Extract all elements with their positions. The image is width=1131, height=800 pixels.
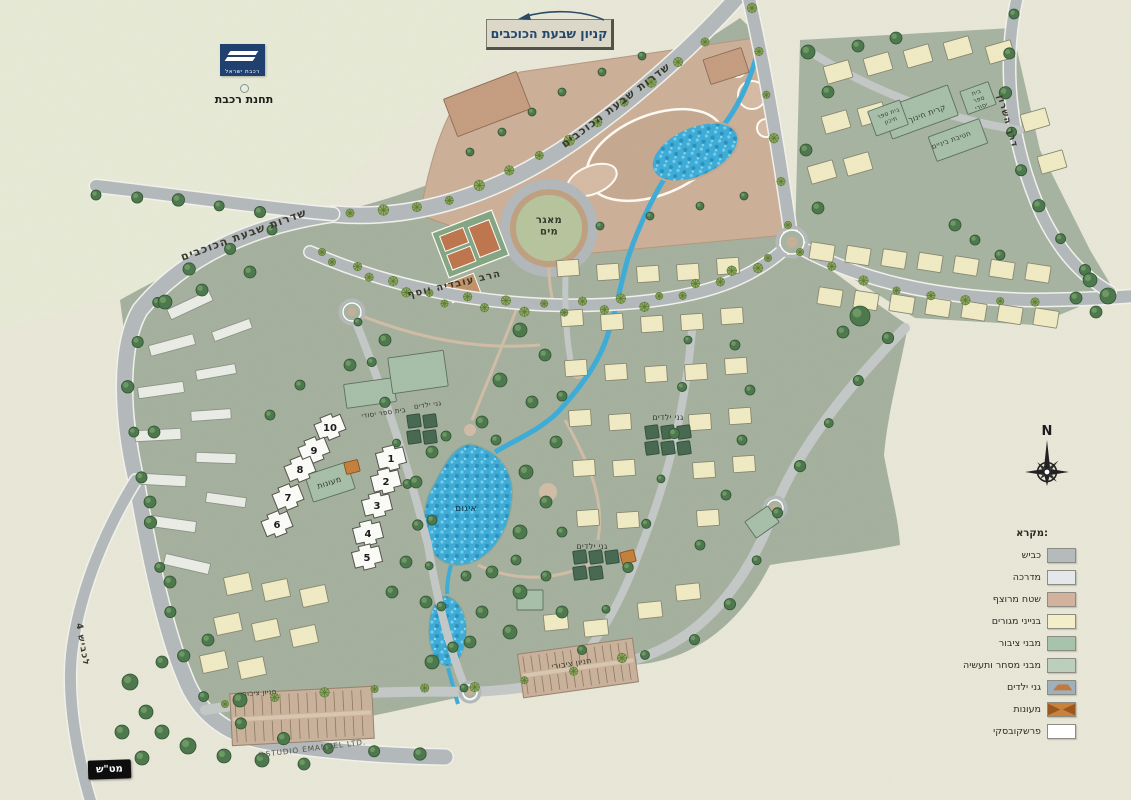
mall-title-text: קניון שבעת הכוכבים [491,26,608,41]
logo-stripe-icon [225,57,256,61]
svg-text:7: 7 [285,493,292,504]
legend-item-prashkovsky: פרשקובסקי [936,724,1078,739]
label-kindergartens-south: גני ילדים [576,542,608,551]
legend-swatch-commerce-industry-buildings [1047,658,1076,673]
legend-swatch-residential-buildings [1047,614,1076,629]
legend-item-kindergartens: גני ילדים [936,680,1078,695]
compass-north-label: N [1042,424,1053,439]
israel-railways-logo: רכבת ישראל [220,44,265,76]
label-kindergartens-center: גני ילדים [652,413,684,422]
svg-text:4: 4 [365,529,372,540]
legend-swatch-sidewalk [1047,570,1076,585]
train-station-label: תחנת רכבת [212,93,276,106]
logo-stripe-icon [228,51,259,55]
sewage-plant-sign: מט"ש [88,759,131,779]
legend-swatch-daycares [1047,702,1076,717]
legend-item-sidewalk: מדרכה [936,570,1078,585]
legend-item-public-buildings: מבני ציבור [936,636,1078,651]
legend-item-daycares: מעונות [936,702,1078,717]
legend-label-public-buildings: מבני ציבור [999,638,1041,649]
legend-rows: כבישמדרכהשטח מרוצףבנייני מגוריםמבני ציבו… [936,548,1078,739]
legend-item-residential-buildings: בנייני מגורים [936,614,1078,629]
map-legend: מקרא: כבישמדרכהשטח מרוצףבנייני מגוריםמבנ… [936,528,1078,746]
legend-label-residential-buildings: בנייני מגורים [992,616,1041,627]
legend-label-prashkovsky: פרשקובסקי [993,726,1041,737]
legend-item-paved-area: שטח מרוצף [936,592,1078,607]
railway-brand-text: רכבת ישראל [220,69,265,75]
train-station-marker [240,84,249,93]
legend-label-sidewalk: מדרכה [1013,572,1041,583]
legend-heading: מקרא: [936,528,1078,539]
site-plan-poster: 10987612345 שדרות שבעת הכוכביםשדרות שבעת… [0,0,1131,800]
svg-text:8: 8 [297,465,304,476]
legend-label-daycares: מעונות [1013,704,1041,715]
svg-text:6: 6 [274,520,281,531]
compass-star-icon [1025,440,1069,489]
label-lake: איגום [455,504,477,514]
legend-swatch-road [1047,548,1076,563]
legend-label-kindergartens: גני ילדים [1007,682,1041,693]
svg-text:3: 3 [374,501,381,512]
legend-label-road: כביש [1022,550,1041,561]
svg-text:9: 9 [311,446,318,457]
sign-swoosh-arrow-icon [500,8,610,24]
legend-item-commerce-industry-buildings: מבני מסחר ותעשיה [936,658,1078,673]
svg-text:10: 10 [323,423,337,434]
legend-item-road: כביש [936,548,1078,563]
svg-text:2: 2 [383,477,390,488]
compass-rose: N [1014,420,1080,508]
legend-label-commerce-industry-buildings: מבני מסחר ותעשיה [963,660,1041,671]
svg-text:1: 1 [388,454,395,465]
svg-text:5: 5 [364,553,371,564]
legend-label-paved-area: שטח מרוצף [993,594,1041,605]
legend-swatch-paved-area [1047,592,1076,607]
legend-swatch-public-buildings [1047,636,1076,651]
legend-swatch-prashkovsky [1047,724,1076,739]
legend-swatch-kindergartens [1047,680,1076,695]
